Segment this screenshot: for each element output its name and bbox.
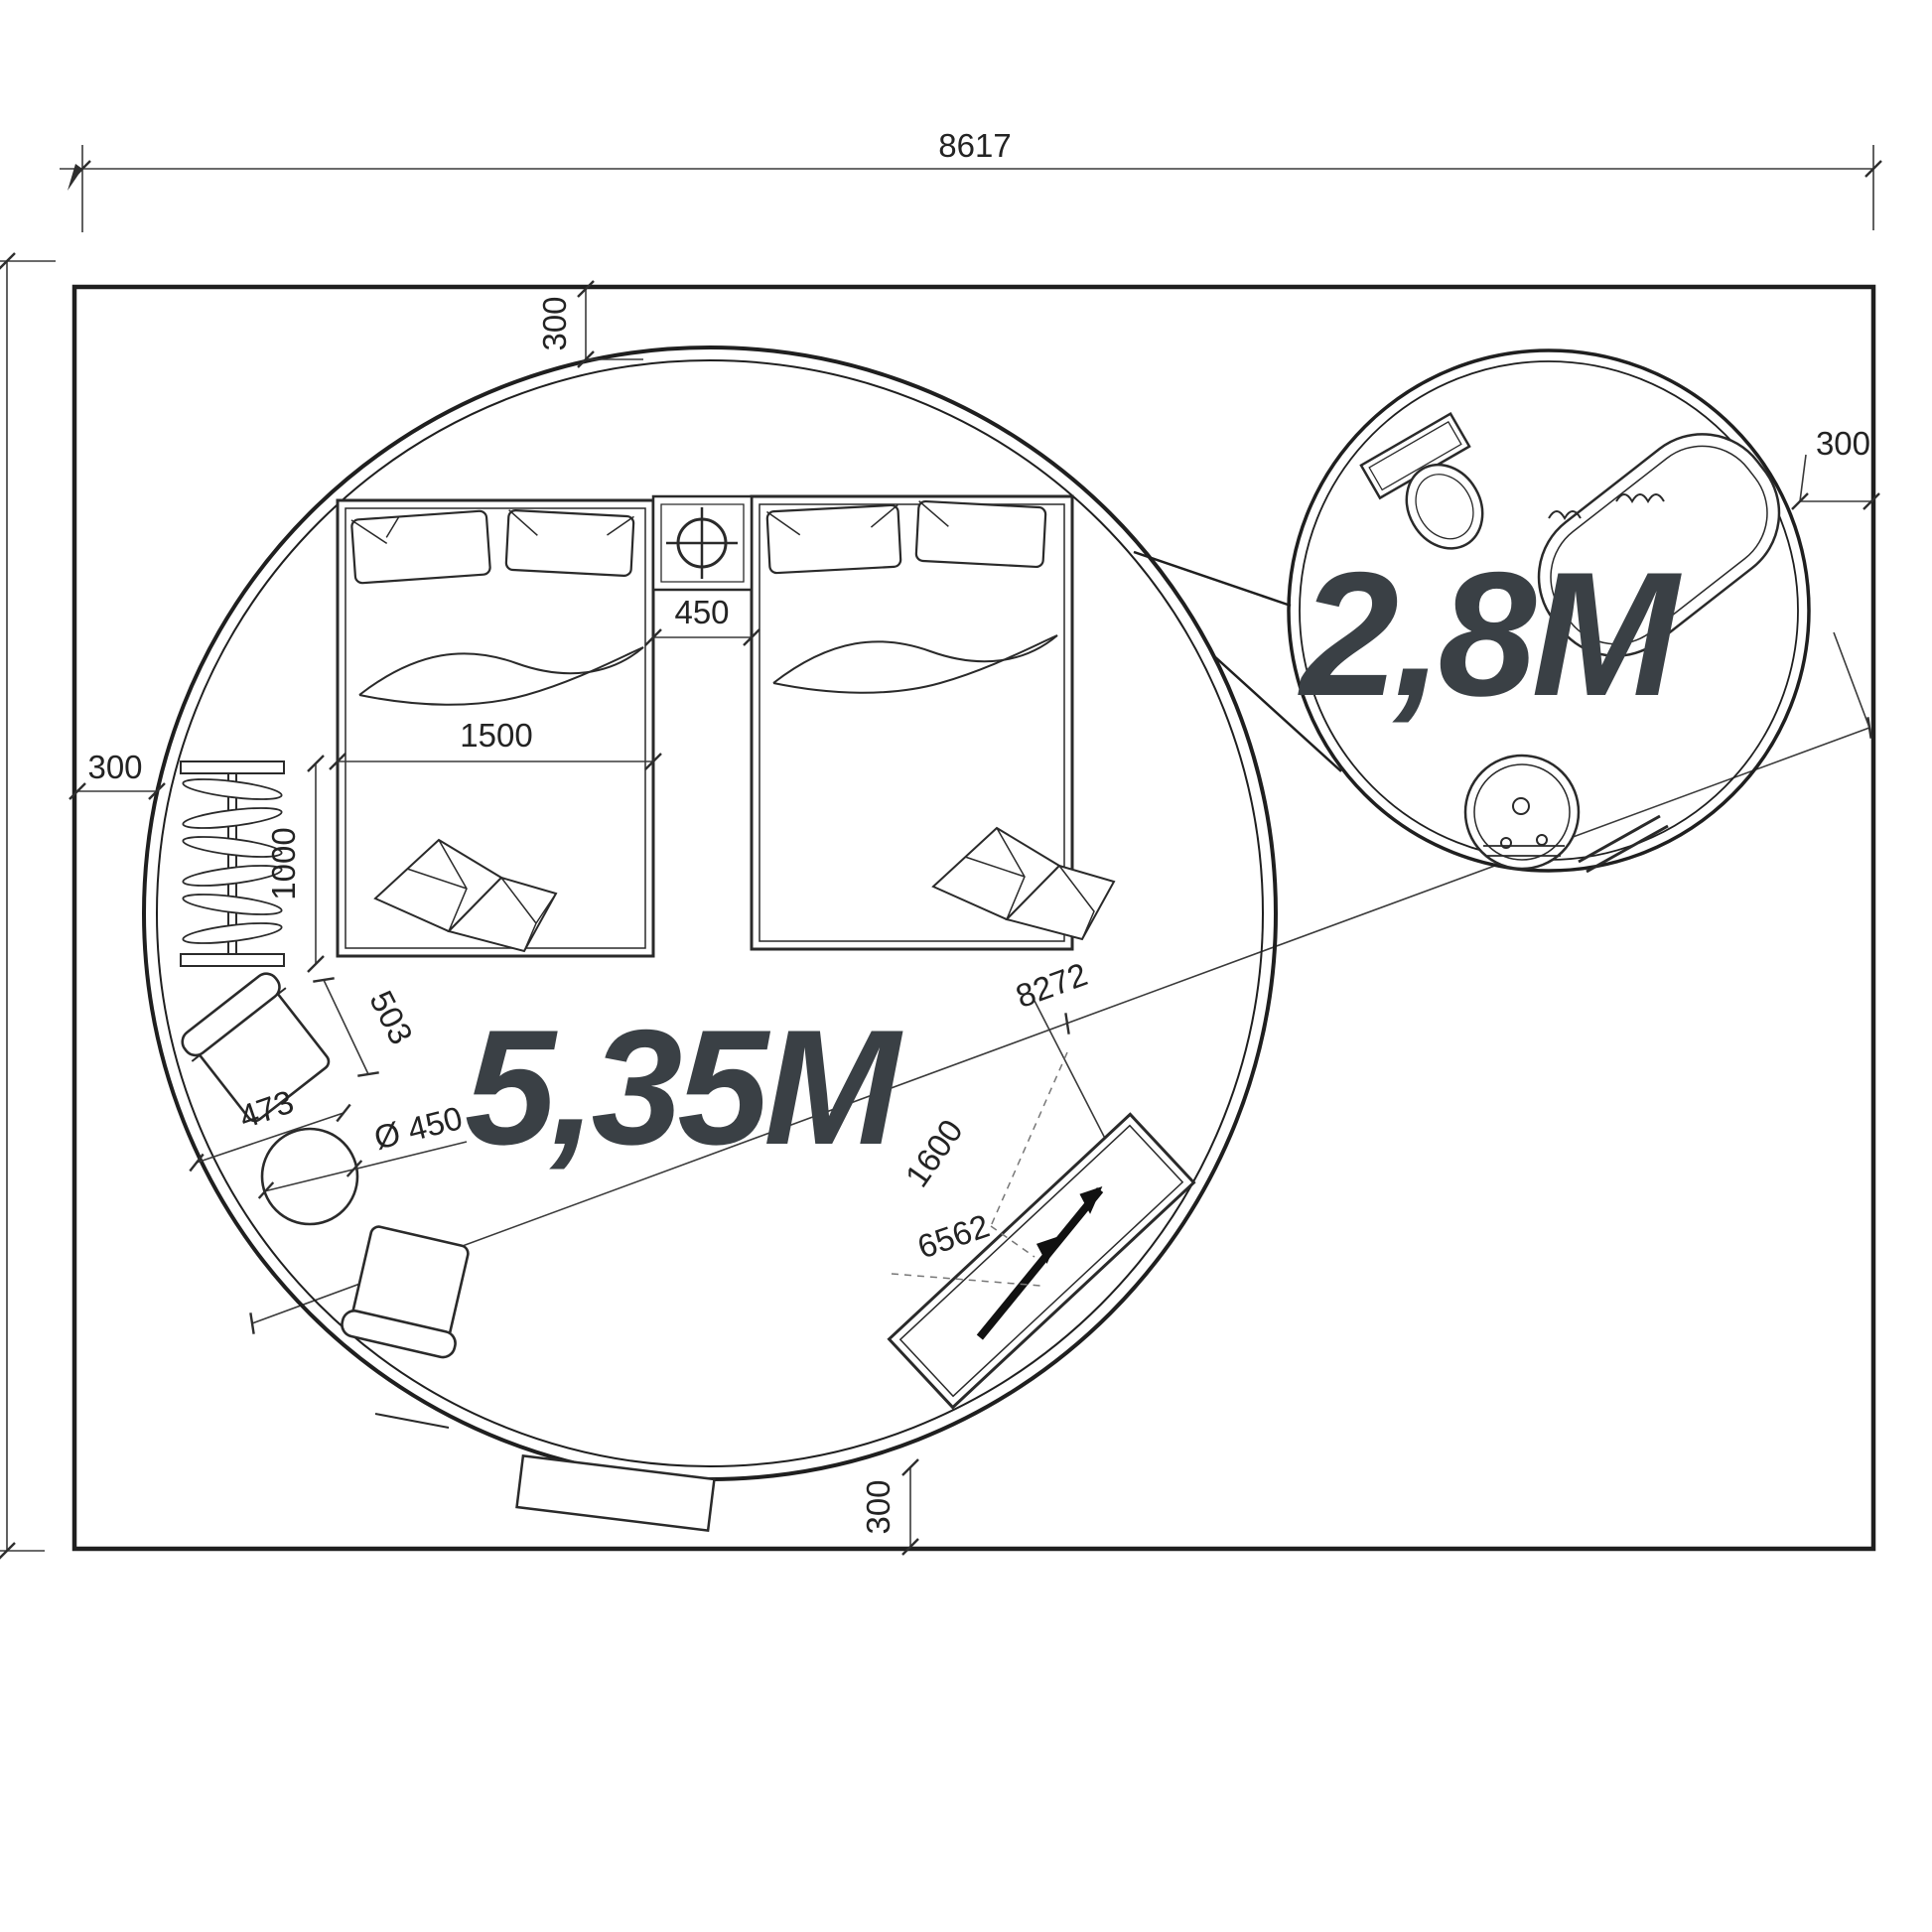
sink [1465,756,1579,869]
large-yurt-diameter-label: 5,35M [465,996,903,1178]
dim-armchair-depth: 503 [313,971,420,1083]
dim-offset-right: 300 [1792,425,1879,509]
dim-label-bench-length: 1600 [897,1113,969,1193]
dim-label-radiator-length: 1000 [265,827,302,899]
dim-label-bed-width: 1500 [460,717,532,754]
floor-plan-canvas: 8617 8272 300 [0,0,1932,1932]
dim-label-offset-bottom: 300 [860,1479,897,1534]
pillow [351,510,490,583]
dim-site-width: 8617 [60,127,1881,232]
dim-site-height-left [0,253,56,1559]
dim-label-offset-right: 300 [1816,425,1870,462]
dim-label-bed-gap: 450 [674,594,729,630]
armchair-lower [340,1223,478,1359]
small-yurt-diameter-label: 2,8M [1298,535,1682,733]
dim-label-offset-top: 300 [536,296,573,350]
bath-shelf [1579,816,1668,872]
pillow [766,505,900,574]
dim-label-armchair-depth: 503 [362,985,420,1050]
dim-label-diagonal-total: 8272 [1011,955,1092,1015]
dim-offset-left: 300 [69,749,165,799]
dim-label-offset-left: 300 [87,749,142,785]
dim-label-site-width: 8617 [938,127,1011,164]
floor-plan-drawing: 8617 8272 300 [0,0,1932,1932]
dim-label-table-diameter: Ø 450 [370,1099,466,1157]
dim-offset-bottom: 300 [860,1459,918,1555]
bedside-console [653,496,752,590]
pillow [506,510,634,577]
pillow [916,501,1046,568]
bed-right [752,496,1114,949]
dim-bed-gap: 450 [645,594,759,645]
entrance-step [375,1414,714,1531]
dim-radiator-length: 1000 [265,756,324,972]
